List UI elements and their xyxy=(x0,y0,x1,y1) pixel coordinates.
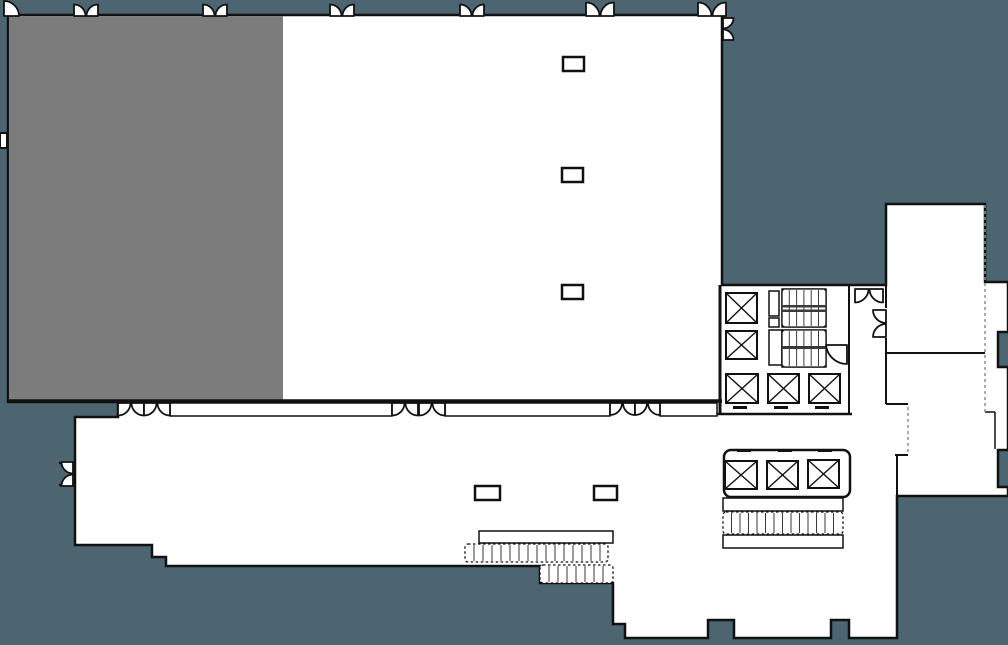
operable-wall xyxy=(170,403,392,416)
elevator-door-mark xyxy=(778,449,792,452)
column xyxy=(594,486,617,500)
elevator-icon xyxy=(726,293,757,323)
stair-vestibule xyxy=(769,330,782,365)
floor-plan xyxy=(0,0,1008,645)
elevator-door-mark xyxy=(818,449,832,452)
stair-rail xyxy=(782,305,826,308)
elevator-icon xyxy=(726,374,758,403)
elevator-door-mark xyxy=(737,449,751,452)
core-stair-treads xyxy=(723,512,843,534)
column xyxy=(563,57,584,71)
stair-rail xyxy=(782,310,826,313)
shaft xyxy=(769,291,779,316)
shaft xyxy=(769,318,779,327)
operable-wall xyxy=(445,403,610,416)
elevator-icon xyxy=(726,331,757,359)
wall-niche xyxy=(0,133,7,148)
column xyxy=(562,168,583,182)
elevator-door-mark xyxy=(774,406,788,409)
elevator-icon xyxy=(809,374,840,403)
escalator-rail xyxy=(479,531,613,543)
operable-wall xyxy=(660,403,717,416)
stair-treads xyxy=(782,289,826,327)
elevator-door-mark xyxy=(733,406,747,409)
ballroom-section-highlighted[interactable] xyxy=(10,17,284,401)
column xyxy=(475,486,500,500)
floor-plan-stage xyxy=(0,0,1008,645)
elevator-door-mark xyxy=(815,406,829,409)
ballroom-section-open[interactable] xyxy=(284,17,719,400)
escalator-treads xyxy=(465,544,608,562)
elevator-icon xyxy=(725,461,757,489)
stair-landing xyxy=(723,535,843,548)
elevator-icon xyxy=(768,374,799,403)
column xyxy=(562,285,583,299)
elevator-icon xyxy=(808,460,839,488)
escalator-treads xyxy=(540,565,613,583)
elevator-icon xyxy=(767,461,798,489)
stair-rail xyxy=(782,346,826,349)
stair-landing xyxy=(723,498,843,511)
